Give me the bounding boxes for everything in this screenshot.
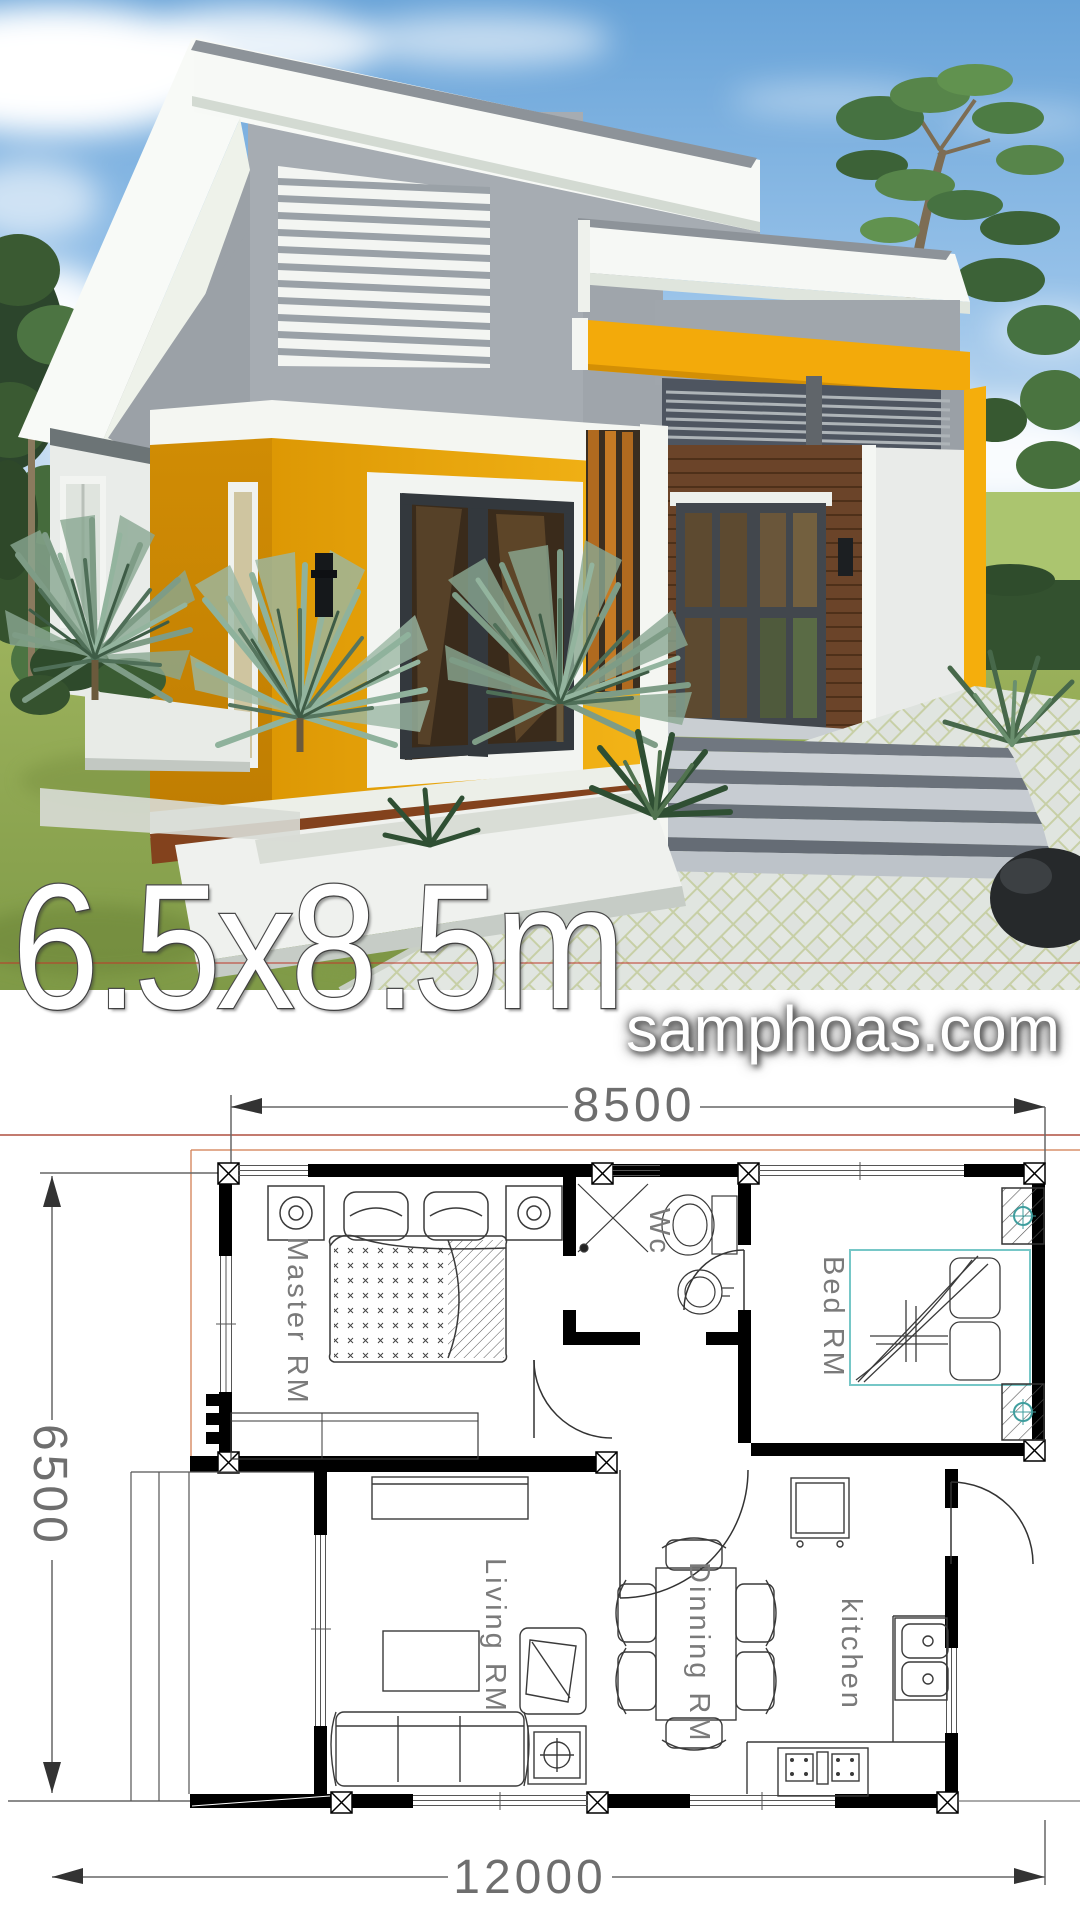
svg-text:kitchen: kitchen <box>835 1598 867 1711</box>
svg-text:8500: 8500 <box>573 1079 696 1132</box>
svg-text:Dinning RM: Dinning RM <box>683 1562 715 1744</box>
svg-text:Wc: Wc <box>643 1208 675 1256</box>
svg-text:Bed RM: Bed RM <box>817 1256 849 1379</box>
svg-text:12000: 12000 <box>453 1851 606 1904</box>
svg-text:Master RM: Master RM <box>281 1237 313 1406</box>
svg-text:6500: 6500 <box>23 1424 76 1547</box>
svg-text:Living RM: Living RM <box>479 1558 511 1714</box>
